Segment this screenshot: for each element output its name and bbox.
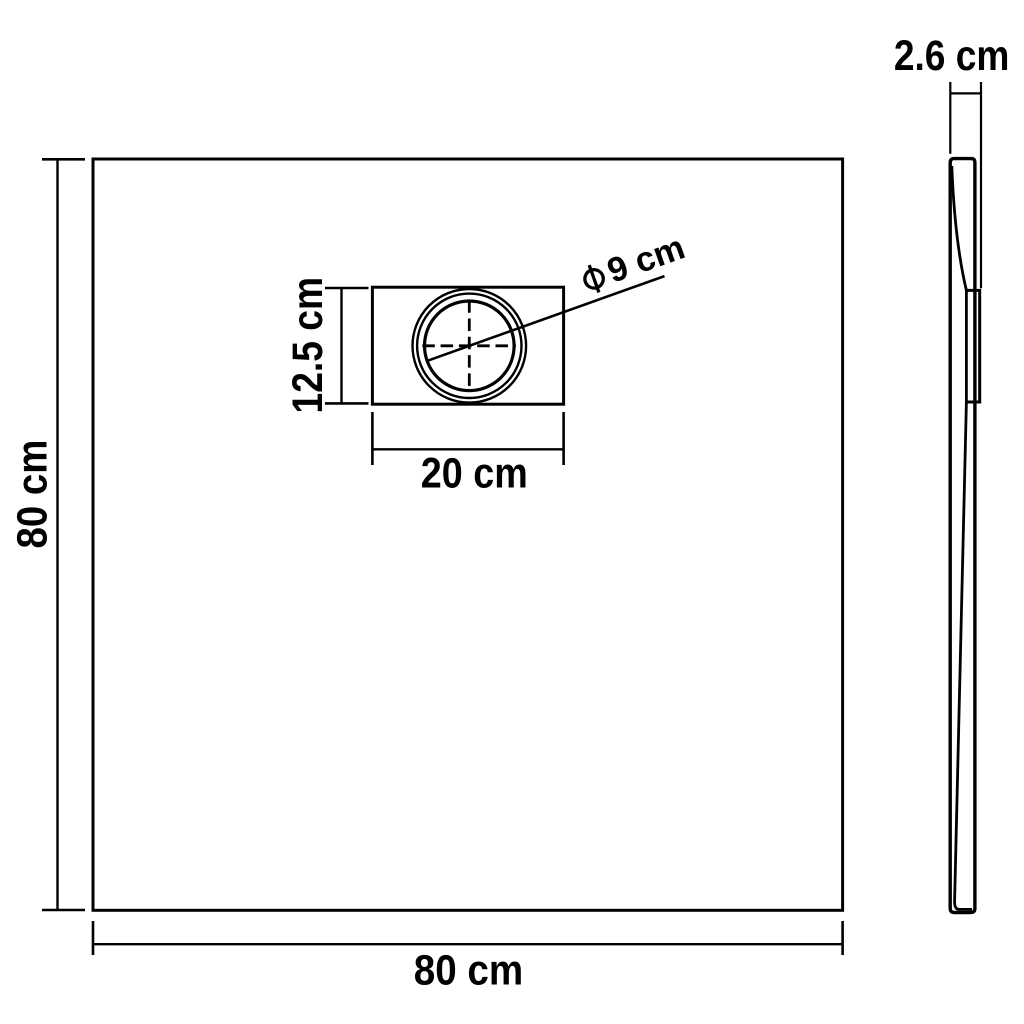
- svg-text:80 cm: 80 cm: [9, 440, 57, 549]
- svg-text:2.6 cm: 2.6 cm: [894, 32, 1010, 80]
- svg-text:12.5 cm: 12.5 cm: [284, 277, 332, 414]
- svg-text:80 cm: 80 cm: [414, 947, 524, 995]
- svg-text:20 cm: 20 cm: [421, 449, 528, 497]
